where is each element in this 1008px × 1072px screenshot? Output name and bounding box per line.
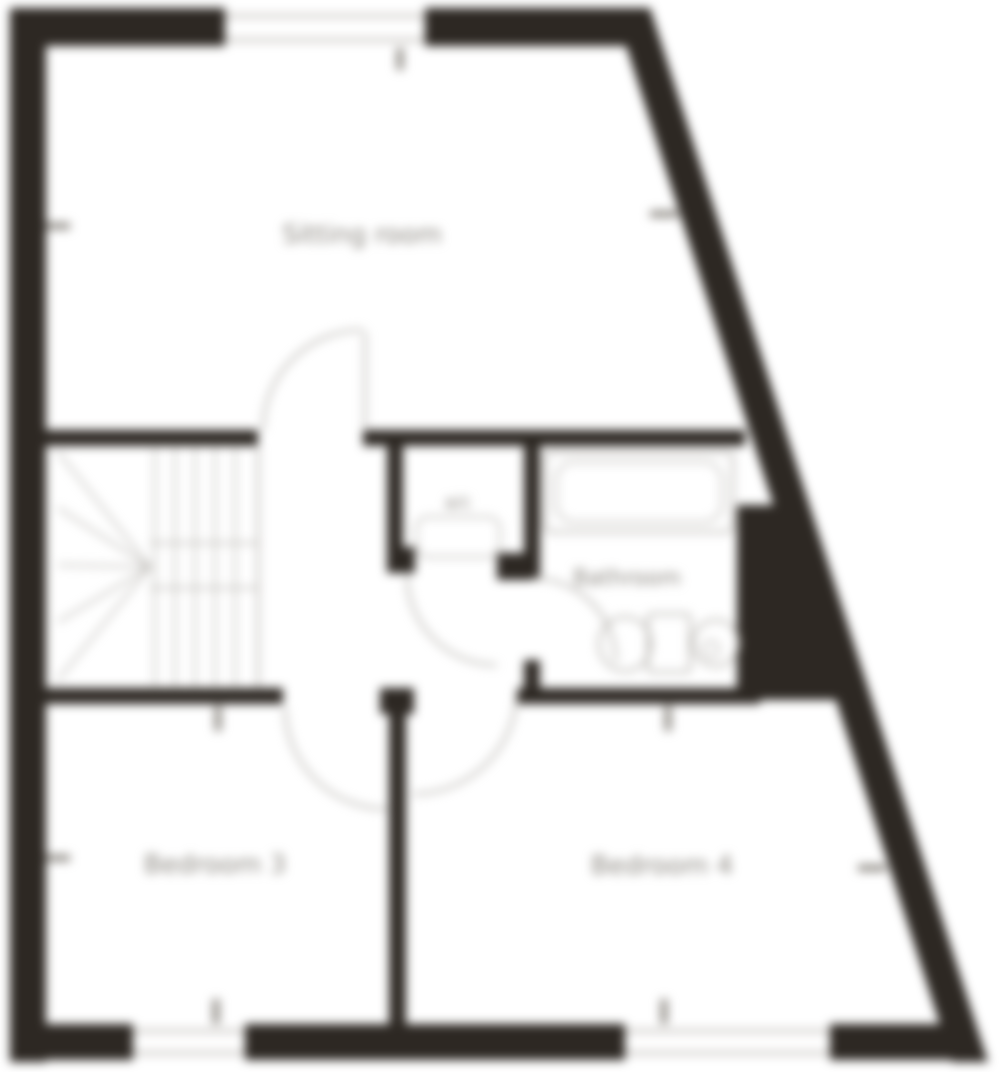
sitting-room-door-arc: [263, 330, 363, 430]
bedroom4-door-arc: [413, 690, 517, 794]
hall-top-wall-right: [363, 430, 745, 446]
window-bedroom4: [625, 1031, 830, 1053]
bathroom-fixtures: [545, 452, 739, 672]
hall-bottom-wall-left: [46, 688, 283, 704]
hall-top-wall-left: [46, 430, 258, 446]
wall-bottom-left: [10, 1024, 133, 1060]
basin-drain: [703, 641, 719, 657]
bathroom-label: Bathroom: [573, 566, 681, 591]
wall-bottom-right: [830, 1024, 970, 1060]
room-labels: Sitting room a/c Bathroom Bedroom 3 Bedr…: [144, 220, 733, 881]
floorplan-page: Sitting room a/c Bathroom Bedroom 3 Bedr…: [0, 0, 1008, 1072]
sitting-room-label: Sitting room: [282, 220, 442, 250]
cupboard-door-arc: [407, 575, 497, 665]
cupboard-fixtures: [416, 517, 500, 557]
toilet-bowl: [599, 617, 651, 671]
wall-bottom-middle: [245, 1024, 625, 1060]
window-top: [225, 16, 425, 40]
wall-top-left: [10, 8, 225, 46]
staircase: [58, 447, 258, 687]
cupboard-left-jamb: [387, 547, 415, 573]
hall-bottom-wall-right: [517, 688, 760, 704]
windows: [133, 16, 830, 1053]
window-bedroom3: [133, 1031, 245, 1053]
bedroom4-label: Bedroom 4: [591, 851, 733, 881]
wall-left: [10, 8, 46, 1062]
bedroom-divider-wall: [389, 688, 406, 1026]
bedroom3-door-arc: [285, 707, 387, 809]
bedroom3-label: Bedroom 3: [144, 850, 286, 880]
interior-walls: [46, 430, 760, 1026]
floorplan-drawing: Sitting room a/c Bathroom Bedroom 3 Bedr…: [0, 0, 1008, 1072]
cupboard-right-jamb: [497, 553, 540, 580]
toilet-cistern: [648, 614, 690, 672]
bath-inner: [556, 462, 722, 522]
doors: [263, 330, 616, 809]
wall-top-right: [425, 8, 648, 46]
cupboard-label: a/c: [445, 492, 472, 513]
water-tank: [416, 517, 500, 557]
bath: [545, 452, 733, 532]
